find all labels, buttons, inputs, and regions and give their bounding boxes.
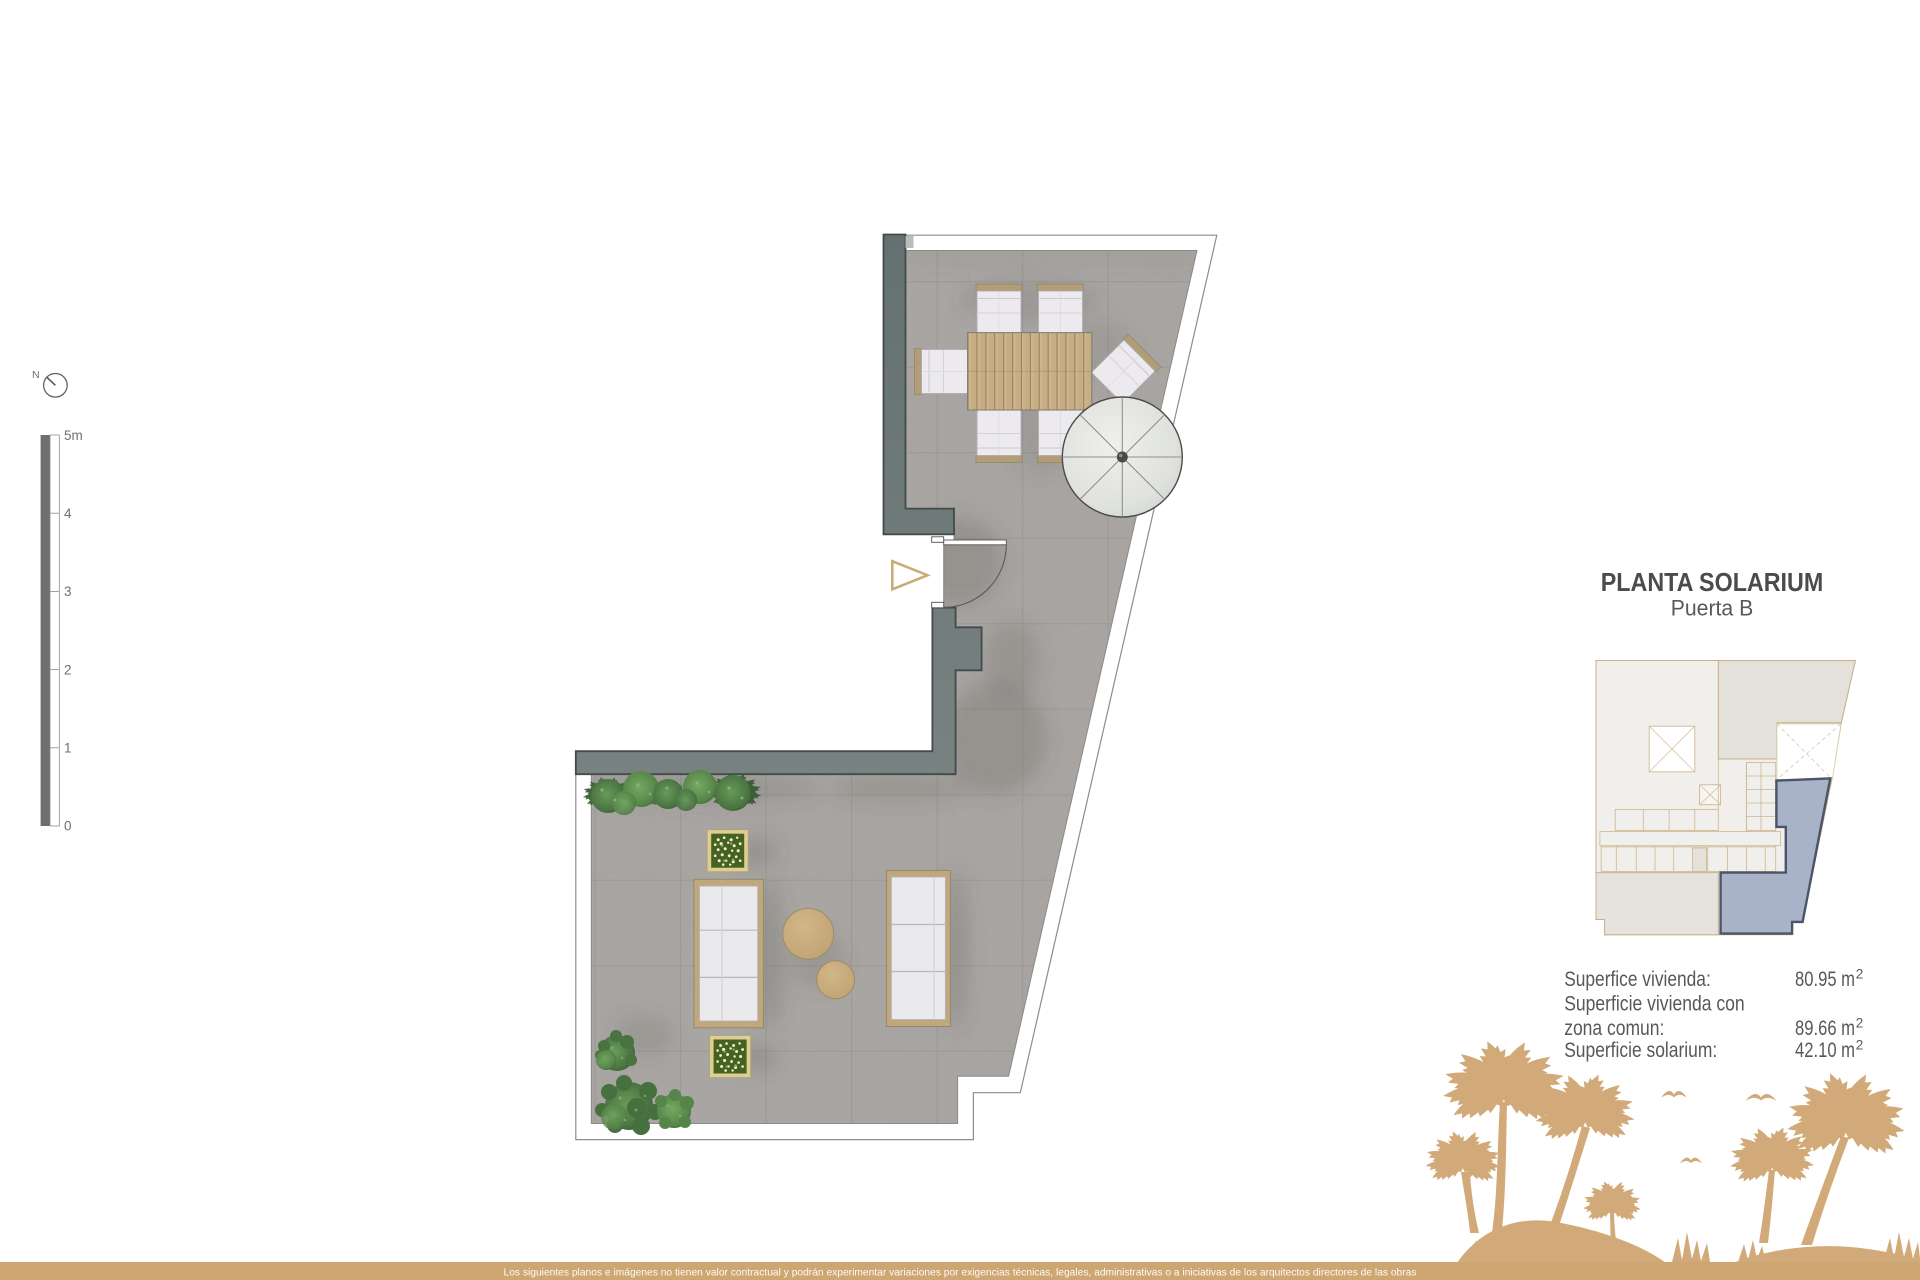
svg-text:N: N: [32, 369, 40, 381]
svg-text:80.95 m: 80.95 m: [1795, 967, 1855, 991]
svg-text:Puerta B: Puerta B: [1671, 596, 1754, 621]
svg-text:Superficie solarium:: Superficie solarium:: [1564, 1038, 1717, 1062]
svg-text:2: 2: [1856, 1038, 1864, 1053]
svg-text:4: 4: [64, 506, 72, 521]
svg-text:PLANTA SOLARIUM: PLANTA SOLARIUM: [1601, 569, 1824, 597]
svg-text:Los siguientes planos e imágen: Los siguientes planos e imágenes no tien…: [504, 1268, 1417, 1279]
svg-text:2: 2: [64, 663, 72, 678]
svg-text:89.66 m: 89.66 m: [1795, 1016, 1855, 1040]
svg-text:42.10 m: 42.10 m: [1795, 1038, 1855, 1062]
svg-text:1: 1: [64, 741, 72, 756]
svg-text:0: 0: [64, 819, 72, 834]
svg-text:3: 3: [64, 584, 72, 599]
svg-text:Superfice vivienda:: Superfice vivienda:: [1564, 967, 1711, 991]
svg-text:2: 2: [1856, 1016, 1864, 1031]
svg-text:zona comun:: zona comun:: [1564, 1016, 1664, 1040]
svg-text:Superficie vivienda con: Superficie vivienda con: [1564, 992, 1745, 1016]
svg-text:2: 2: [1856, 967, 1864, 982]
svg-text:5m: 5m: [64, 428, 83, 443]
